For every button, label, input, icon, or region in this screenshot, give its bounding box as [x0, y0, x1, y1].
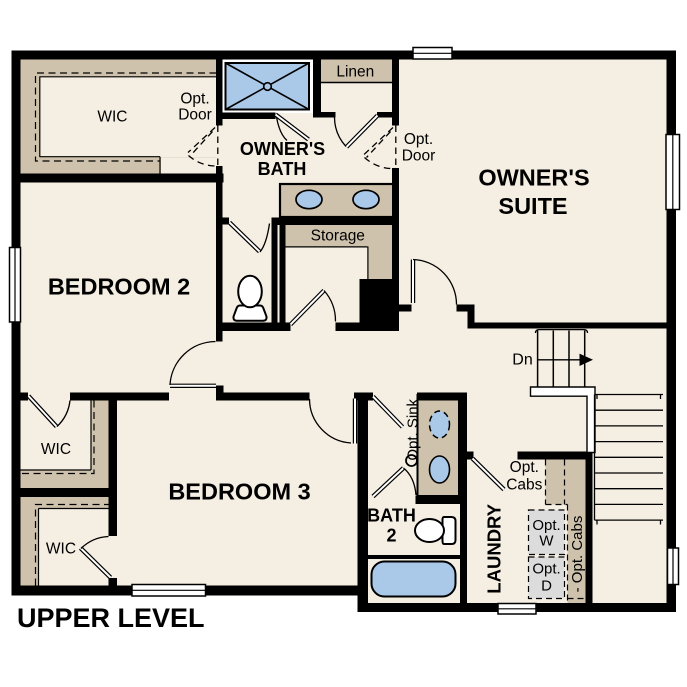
svg-text:OWNER'S: OWNER'S: [240, 139, 325, 159]
svg-text:Dn: Dn: [512, 352, 532, 369]
svg-text:D: D: [541, 578, 552, 595]
svg-text:Door: Door: [178, 107, 212, 124]
svg-text:Opt. Sink: Opt. Sink: [405, 398, 422, 460]
svg-text:Linen: Linen: [336, 64, 374, 81]
svg-text:WIC: WIC: [46, 541, 76, 558]
svg-text:LAUNDRY: LAUNDRY: [484, 503, 505, 593]
svg-text:BATH: BATH: [258, 159, 307, 179]
svg-text:SUITE: SUITE: [498, 193, 567, 219]
svg-text:W: W: [539, 533, 554, 550]
svg-text:UPPER LEVEL: UPPER LEVEL: [17, 603, 205, 633]
svg-text:Storage: Storage: [311, 227, 365, 244]
svg-text:Door: Door: [402, 148, 436, 165]
svg-text:Cabs: Cabs: [506, 477, 542, 494]
svg-text:Opt.: Opt.: [404, 131, 433, 148]
svg-text:2: 2: [386, 526, 396, 546]
svg-text:BEDROOM 3: BEDROOM 3: [168, 479, 310, 505]
svg-text:BATH: BATH: [367, 506, 416, 526]
svg-text:OWNER'S: OWNER'S: [478, 165, 589, 191]
svg-text:WIC: WIC: [97, 109, 127, 126]
svg-text:- Opt. Cabs: - Opt. Cabs: [569, 516, 586, 593]
svg-text:Opt.: Opt.: [532, 517, 560, 534]
svg-text:WIC: WIC: [41, 441, 71, 458]
svg-text:BEDROOM 2: BEDROOM 2: [48, 274, 190, 300]
svg-text:Opt.: Opt.: [510, 459, 539, 476]
svg-text:Opt.: Opt.: [532, 561, 560, 578]
svg-text:Opt.: Opt.: [180, 91, 209, 108]
